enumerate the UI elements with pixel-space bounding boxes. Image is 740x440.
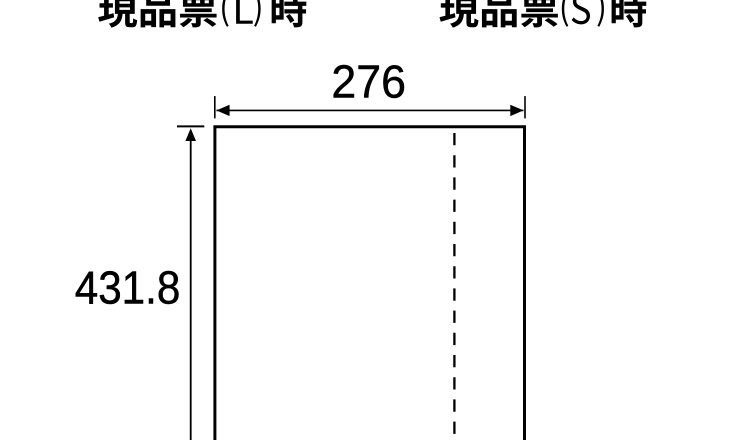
svg-text:431.8: 431.8 [75,263,181,314]
svg-text:276: 276 [331,56,406,108]
